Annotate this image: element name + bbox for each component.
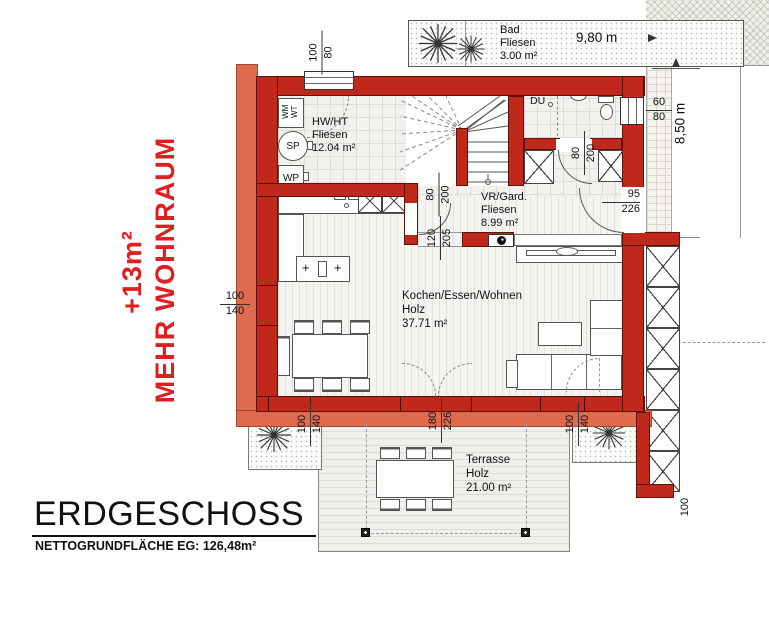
- wall-bath-bottom: [524, 138, 560, 150]
- wall-stair-newel: [456, 128, 468, 186]
- wp-nub: [303, 172, 309, 181]
- dim-overall-width: 9,80 m: [576, 30, 617, 45]
- garden-gate-line: [680, 237, 700, 238]
- wall-stair-bath: [508, 96, 524, 186]
- dining-chair: [294, 378, 314, 392]
- neighbor-wall-strip: [646, 67, 672, 232]
- dining-table: [292, 334, 368, 378]
- terrace-chair: [380, 499, 400, 511]
- dim-bottom-right-window: 100140: [564, 402, 592, 446]
- sofa-armrest: [506, 360, 518, 388]
- terrace-chair: [406, 499, 426, 511]
- insulation-left: [236, 64, 258, 427]
- terrace-post: [361, 528, 370, 537]
- terrace-boundary-dashed: [366, 424, 367, 534]
- tv: [556, 247, 578, 256]
- terrace-chair: [406, 447, 426, 459]
- sofa-chaise: [590, 300, 624, 356]
- dim-entry-door: 95226: [602, 189, 640, 215]
- room-label-terrasse: TerrasseHolz21.00 m²: [466, 454, 511, 495]
- dim-bath-door: 80200: [570, 131, 598, 175]
- burner-mark: +: [302, 260, 310, 275]
- wall-left: [256, 76, 278, 412]
- flower-icon: [452, 34, 490, 64]
- terrace-table: [376, 460, 454, 498]
- terrace-boundary-dashed: [526, 424, 527, 534]
- floor-plan-canvas: BadFliesen3.00 m² 9,80 m 8,50 m: [0, 0, 769, 622]
- arrow-up-icon: [672, 58, 680, 67]
- garden-wall: [622, 232, 680, 246]
- arrow-right-icon: [648, 34, 657, 42]
- window-bath: [620, 97, 644, 125]
- dining-chair: [322, 320, 342, 334]
- dim-left-window: 100140: [220, 291, 250, 317]
- opening-tick: [256, 325, 278, 326]
- terrace-door-swing-line: [599, 358, 600, 392]
- opening-tick: [471, 396, 472, 412]
- toilet-tank: [598, 96, 614, 103]
- chimney-flue-icon: [497, 236, 506, 245]
- dim-pergola: 100: [679, 489, 693, 525]
- door-gap-hall: [405, 203, 417, 235]
- plan-subtitle: NETTOGRUNDFLÄCHE EG: 126,48m²: [35, 539, 256, 553]
- dim-overall-height: 8,50 m: [673, 78, 688, 170]
- dim-hall-door: 80200: [426, 173, 453, 217]
- partition-wardrobe: [514, 234, 622, 246]
- promo-text: MEHR WOHNRAUM: [150, 130, 184, 410]
- terrace-boundary-dashed: [366, 533, 527, 534]
- room-label-hwht: HW/HTFliesen12.04 m²: [312, 116, 355, 156]
- dim-kitchen-pass: 120205: [426, 216, 454, 260]
- promo-gain: +13m²: [117, 202, 149, 342]
- shaft-xbox: [524, 150, 554, 184]
- burner-mark: +: [334, 260, 342, 275]
- faucet-icon: [344, 203, 349, 208]
- dim-bath-window: 6080: [646, 97, 672, 123]
- toilet: [600, 104, 613, 120]
- dining-chair: [350, 320, 370, 334]
- room-label-wohnen: Kochen/Essen/WohnenHolz37.71 m²: [402, 290, 522, 331]
- dim-terrace-door: 180226: [427, 399, 455, 443]
- shaft-xbox: [598, 150, 624, 182]
- terrace-chair: [432, 447, 452, 459]
- coffee-table: [538, 322, 582, 346]
- room-label-bad: BadFliesen3.00 m²: [500, 24, 537, 64]
- room-label-vr: VR/Gard.Fliesen8.99 m²: [481, 191, 527, 231]
- burner-mark: [318, 261, 327, 277]
- sp-unit: SP: [278, 131, 308, 161]
- terrace-chair: [380, 447, 400, 459]
- staircase: [400, 96, 508, 186]
- dining-chair: [350, 378, 370, 392]
- label-wt: WT: [290, 106, 299, 118]
- wall-pergola: [636, 484, 674, 498]
- shower-divider: [557, 96, 558, 136]
- opening-tick: [540, 396, 541, 412]
- wall-hwht: [256, 183, 406, 197]
- dim-top-window: 10080: [309, 31, 336, 75]
- opening-tick: [268, 396, 269, 412]
- dim-tick: [652, 68, 700, 69]
- label-wm: WM: [281, 105, 290, 119]
- terrace-post: [521, 528, 530, 537]
- dining-chair: [322, 378, 342, 392]
- pergola-trellis: [646, 246, 680, 492]
- opening-tick: [256, 285, 278, 286]
- dining-chair: [294, 320, 314, 334]
- opening-tick: [400, 396, 401, 412]
- label-du: DU: [530, 95, 545, 107]
- terrace-chair: [432, 499, 452, 511]
- washer-dryer-box: WM WT: [278, 98, 304, 128]
- plan-title: ERDGESCHOSS: [32, 495, 316, 537]
- dim-bottom-left-window: 100140: [296, 402, 324, 446]
- shower-drain-icon: [548, 102, 553, 107]
